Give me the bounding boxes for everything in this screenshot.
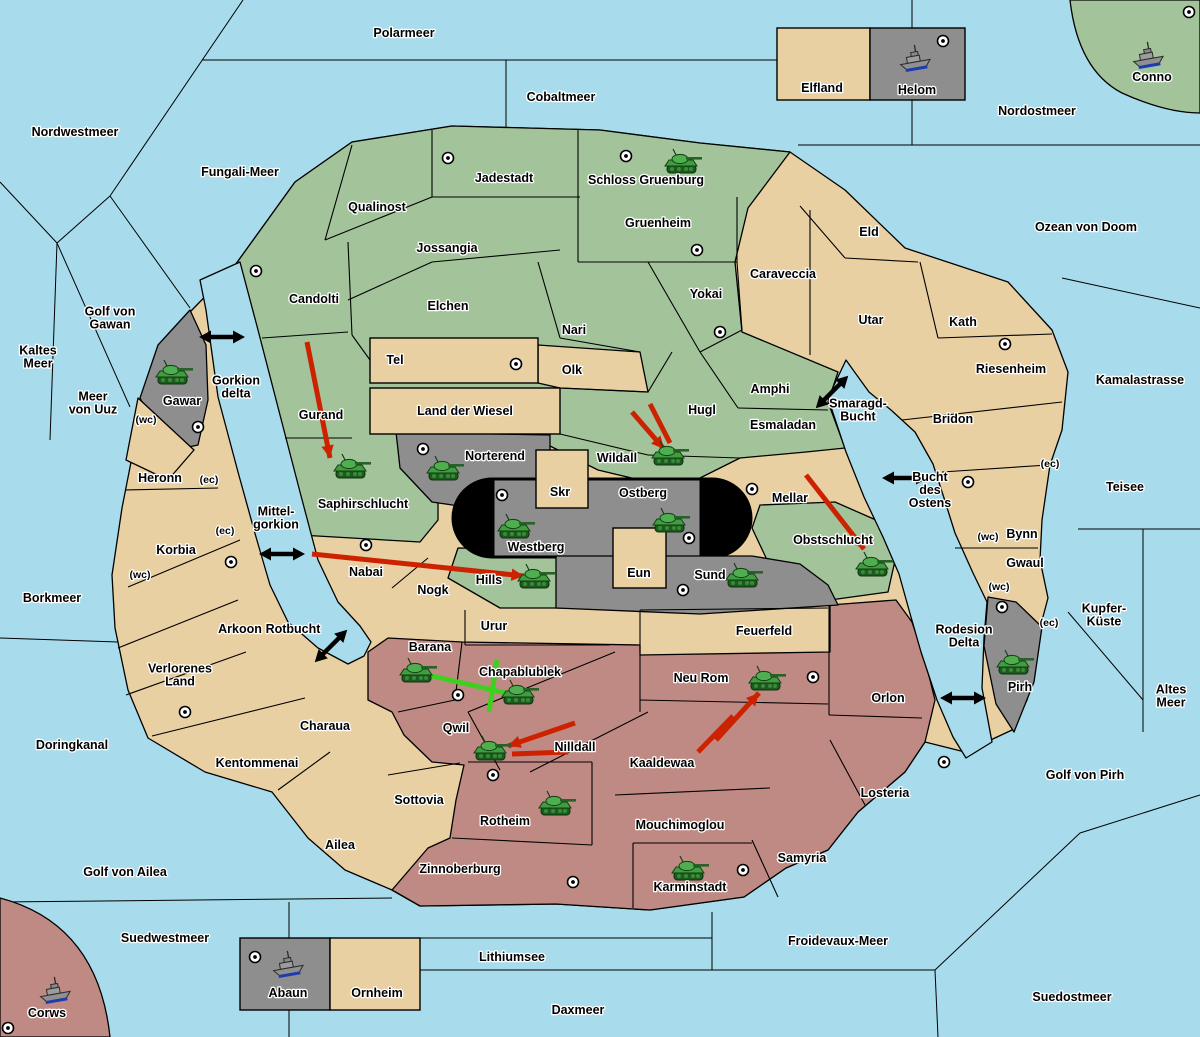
- sea-label-rotbucht: Rotbucht: [266, 622, 322, 636]
- territory-label-wildall[interactable]: Wildall: [597, 451, 637, 465]
- territory-label-jadestadt[interactable]: Jadestadt: [475, 171, 534, 185]
- sea-label-doringkanal: Doringkanal: [36, 738, 108, 752]
- territory-box: [536, 450, 588, 508]
- territory-label-bynn[interactable]: Bynn: [1006, 527, 1037, 541]
- city-icon: [621, 151, 632, 162]
- territory-label-gawar[interactable]: Gawar: [163, 394, 201, 408]
- city-icon: [1000, 339, 1011, 350]
- map-canvas: JadestadtSchloss GruenburgQualinostJossa…: [0, 0, 1200, 1037]
- territory-label-esmaladan[interactable]: Esmaladan: [750, 418, 816, 432]
- territory-label-barana[interactable]: Barana: [409, 640, 452, 654]
- sea-label-altes-meer: AltesMeer: [1156, 683, 1187, 710]
- city-icon: [715, 327, 726, 338]
- territory-label-qualinost[interactable]: Qualinost: [348, 200, 406, 214]
- territory-label-karminstadt[interactable]: Karminstadt: [654, 880, 728, 894]
- sea-label-mittel-gorkion: Mittel-gorkion: [253, 505, 299, 532]
- territory-label-ailea[interactable]: Ailea: [325, 838, 356, 852]
- territory-label-neu-rom[interactable]: Neu Rom: [674, 671, 729, 685]
- territory-label-kath[interactable]: Kath: [949, 315, 977, 329]
- territory-label-ostberg[interactable]: Ostberg: [619, 486, 667, 500]
- territory-label-zinnoberburg[interactable]: Zinnoberburg: [419, 862, 500, 876]
- territory-label-kentommenai[interactable]: Kentommenai: [216, 756, 299, 770]
- city-icon: [251, 266, 262, 277]
- city-icon: [3, 1023, 14, 1034]
- territory-label-nilldall[interactable]: Nilldall: [555, 740, 596, 754]
- territory-label-samyria[interactable]: Samyria: [778, 851, 828, 865]
- coast-marker-wc: (wc): [978, 531, 999, 543]
- territory-label-eun[interactable]: Eun: [627, 566, 651, 580]
- city-icon: [808, 672, 819, 683]
- city-icon: [250, 952, 261, 963]
- coast-marker-ec: (ec): [216, 525, 235, 537]
- sea-label-kaltes-meer: KaltesMeer: [19, 344, 57, 371]
- territory-label-pirh[interactable]: Pirh: [1008, 680, 1032, 694]
- territory-label-elchen[interactable]: Elchen: [428, 299, 469, 313]
- territory-label-sund[interactable]: Sund: [694, 568, 725, 582]
- territory-label-gwaul[interactable]: Gwaul: [1006, 556, 1044, 570]
- city-icon: [226, 557, 237, 568]
- territory-label-helom[interactable]: Helom: [898, 83, 936, 97]
- territory-label-charaua[interactable]: Charaua: [300, 719, 351, 733]
- territory-label-olk[interactable]: Olk: [562, 363, 582, 377]
- territory-label-nari[interactable]: Nari: [562, 323, 586, 337]
- territory-label-arkoon[interactable]: Arkoon: [218, 622, 262, 636]
- sea-label-nordwestmeer: Nordwestmeer: [32, 125, 119, 139]
- city-icon: [568, 877, 579, 888]
- city-icon: [938, 36, 949, 47]
- sea-label-teisee: Teisee: [1106, 480, 1144, 494]
- territory-label-gruenheim[interactable]: Gruenheim: [625, 216, 691, 230]
- territory-label-korbia[interactable]: Korbia: [156, 543, 197, 557]
- territory-label-corws[interactable]: Corws: [28, 1006, 66, 1020]
- grey-zone-sund: [556, 556, 838, 614]
- territory-label-mouchimoglou[interactable]: Mouchimoglou: [636, 818, 725, 832]
- territory-label-gurand[interactable]: Gurand: [299, 408, 343, 422]
- sea-label-golf-von-pirh: Golf von Pirh: [1046, 768, 1124, 782]
- city-icon: [747, 484, 758, 495]
- city-icon: [939, 757, 950, 768]
- city-icon: [997, 602, 1008, 613]
- coast-marker-wc: (wc): [136, 414, 157, 426]
- territory-label-saphirschlucht[interactable]: Saphirschlucht: [318, 497, 409, 511]
- territory-label-urur[interactable]: Urur: [481, 619, 508, 633]
- territory-label-kaaldewaa[interactable]: Kaaldewaa: [630, 756, 696, 770]
- territory-label-conno[interactable]: Conno: [1132, 70, 1172, 84]
- city-icon: [678, 585, 689, 596]
- territory-label-orlon[interactable]: Orlon: [871, 691, 904, 705]
- territory-label-candolti[interactable]: Candolti: [289, 292, 339, 306]
- territory-label-skr[interactable]: Skr: [550, 485, 570, 499]
- city-icon: [692, 245, 703, 256]
- territory-label-ornheim[interactable]: Ornheim: [351, 986, 402, 1000]
- city-icon: [684, 533, 695, 544]
- sea-label-golf-von-gawan: Golf vonGawan: [85, 305, 136, 332]
- sea-label-suedostmeer: Suedostmeer: [1032, 990, 1111, 1004]
- city-icon: [180, 707, 191, 718]
- city-icon: [738, 865, 749, 876]
- territory-label-yokai[interactable]: Yokai: [690, 287, 722, 301]
- territory-label-land-der-wiesel[interactable]: Land der Wiesel: [417, 404, 513, 418]
- game-map: JadestadtSchloss GruenburgQualinostJossa…: [0, 0, 1200, 1037]
- territory-label-obstschlucht[interactable]: Obstschlucht: [793, 533, 874, 547]
- territory-label-nogk[interactable]: Nogk: [417, 583, 448, 597]
- territory-label-hills[interactable]: Hills: [476, 573, 502, 587]
- territory-label-chapablublek[interactable]: Chapablublek: [479, 665, 561, 679]
- territory-label-nabai[interactable]: Nabai: [349, 565, 383, 579]
- territory-label-jossangia[interactable]: Jossangia: [416, 241, 478, 255]
- territory-label-amphi[interactable]: Amphi: [751, 382, 790, 396]
- territory-label-caraveccia[interactable]: Caraveccia: [750, 267, 817, 281]
- sea-label-kupfer-k-ste: Kupfer-Küste: [1082, 602, 1126, 629]
- sea-label-kamalastrasse: Kamalastrasse: [1096, 373, 1184, 387]
- territory-label-tel[interactable]: Tel: [386, 353, 403, 367]
- city-icon: [497, 490, 508, 501]
- tan-zone-olk: [538, 345, 648, 392]
- sea-label-fungali-meer: Fungali-Meer: [201, 165, 279, 179]
- sea-label-suedwestmeer: Suedwestmeer: [121, 931, 209, 945]
- coast-marker-ec: (ec): [1041, 458, 1060, 470]
- coast-marker-wc: (wc): [130, 569, 151, 581]
- city-icon: [511, 359, 522, 370]
- sea-label-nordostmeer: Nordostmeer: [998, 104, 1076, 118]
- territory-label-mellar[interactable]: Mellar: [772, 491, 808, 505]
- city-icon: [963, 477, 974, 488]
- city-icon: [361, 540, 372, 551]
- territory-label-riesenheim[interactable]: Riesenheim: [976, 362, 1046, 376]
- sea-label-polarmeer: Polarmeer: [373, 26, 434, 40]
- territory-label-utar[interactable]: Utar: [858, 313, 883, 327]
- city-icon: [418, 444, 429, 455]
- territory-label-qwil[interactable]: Qwil: [443, 721, 469, 735]
- territory-label-losteria[interactable]: Losteria: [861, 786, 911, 800]
- territory-label-norterend[interactable]: Norterend: [465, 449, 525, 463]
- city-icon: [193, 422, 204, 433]
- territory-label-westberg[interactable]: Westberg: [508, 540, 565, 554]
- territory-label-eld[interactable]: Eld: [859, 225, 878, 239]
- territory-label-rotheim[interactable]: Rotheim: [480, 814, 530, 828]
- city-icon: [488, 770, 499, 781]
- sea-label-borkmeer: Borkmeer: [23, 591, 81, 605]
- city-icon: [453, 690, 464, 701]
- city-icon: [1184, 7, 1195, 18]
- territory-label-heronn[interactable]: Heronn: [138, 471, 182, 485]
- sea-label-froidevaux-meer: Froidevaux-Meer: [788, 934, 888, 948]
- sea-label-golf-von-ailea: Golf von Ailea: [83, 865, 168, 879]
- territory-label-bridon[interactable]: Bridon: [933, 412, 973, 426]
- sea-label-ozean-von-doom: Ozean von Doom: [1035, 220, 1137, 234]
- sea-label-daxmeer: Daxmeer: [552, 1003, 605, 1017]
- territory-label-abaun[interactable]: Abaun: [269, 986, 308, 1000]
- territory-label-elfland[interactable]: Elfland: [801, 81, 843, 95]
- coast-marker-ec: (ec): [1040, 617, 1059, 629]
- coast-marker-wc: (wc): [989, 581, 1010, 593]
- territory-label-hugl[interactable]: Hugl: [688, 403, 716, 417]
- city-icon: [443, 153, 454, 164]
- territory-label-sottovia[interactable]: Sottovia: [394, 793, 444, 807]
- sea-label-cobaltmeer: Cobaltmeer: [527, 90, 596, 104]
- territory-label-feuerfeld[interactable]: Feuerfeld: [736, 624, 792, 638]
- territory-label-schloss-gruenburg[interactable]: Schloss Gruenburg: [588, 173, 704, 187]
- sea-label-lithiumsee: Lithiumsee: [479, 950, 545, 964]
- coast-marker-ec: (ec): [200, 474, 219, 486]
